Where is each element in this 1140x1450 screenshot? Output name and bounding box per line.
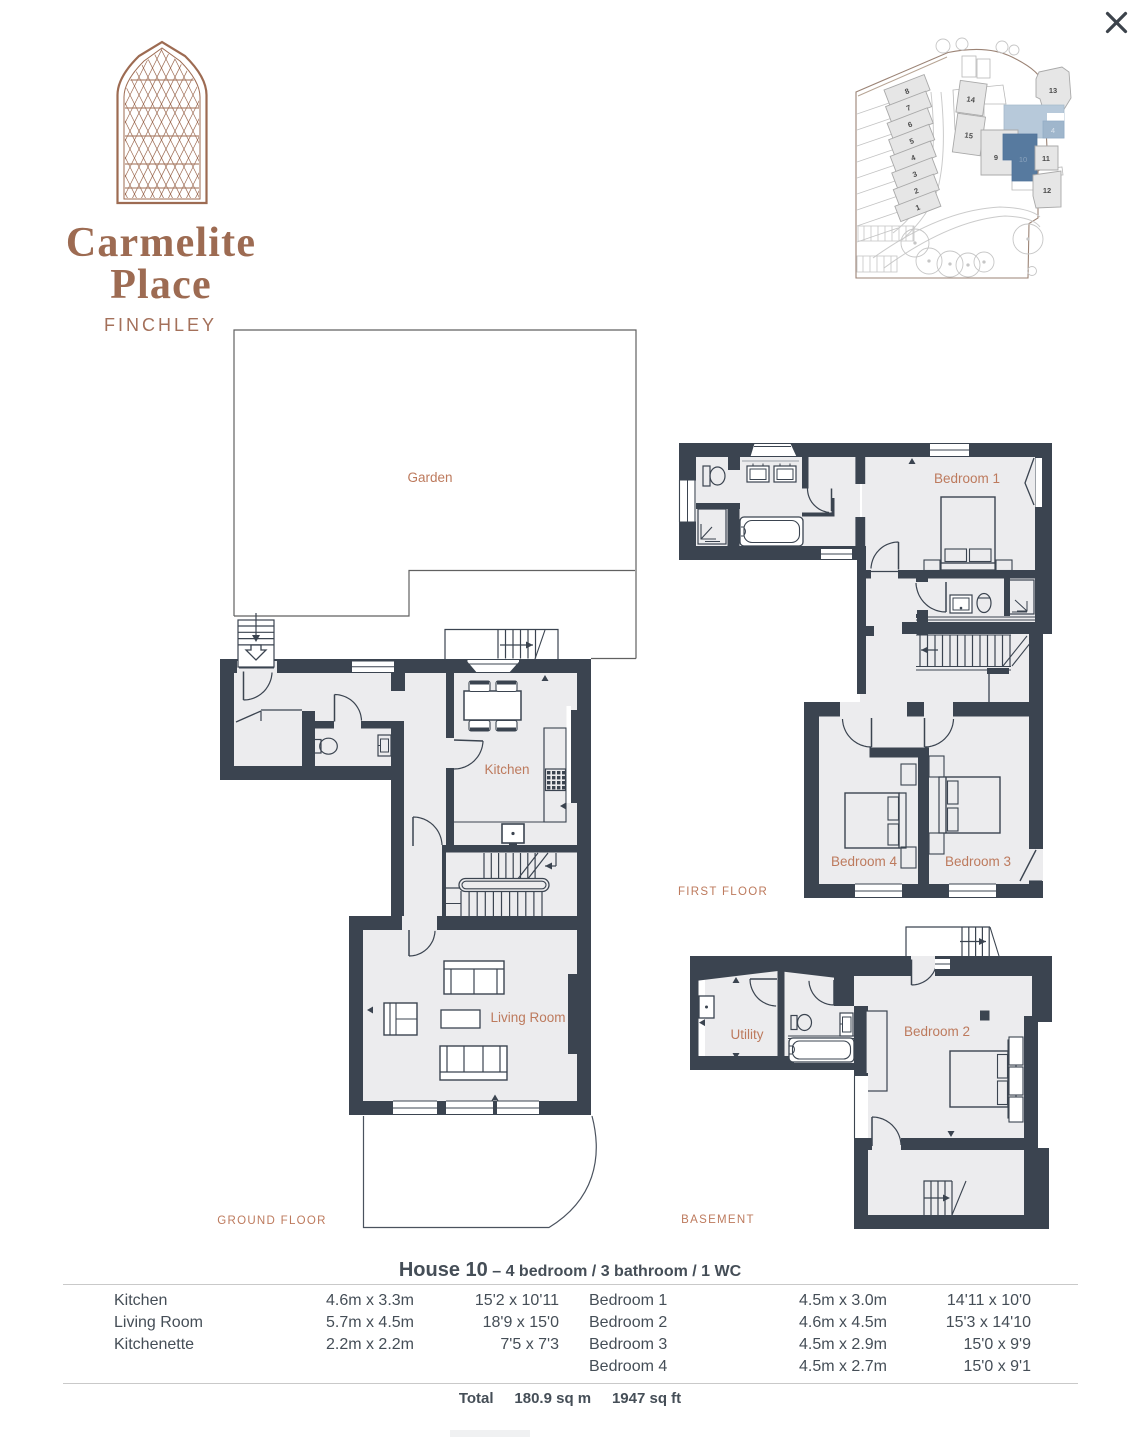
svg-text:Living Room: Living Room <box>490 1010 565 1025</box>
svg-text:12: 12 <box>1043 186 1051 195</box>
svg-text:Bedroom 3: Bedroom 3 <box>945 854 1011 869</box>
svg-text:FINCHLEY: FINCHLEY <box>104 315 217 335</box>
svg-text:Carmelite: Carmelite <box>66 220 256 266</box>
svg-text:Utility: Utility <box>731 1027 764 1042</box>
svg-text:13: 13 <box>1049 86 1057 95</box>
svg-text:GROUND FLOOR: GROUND FLOOR <box>217 1215 327 1227</box>
svg-text:Kitchen: Kitchen <box>484 762 529 777</box>
svg-text:Bedroom 1: Bedroom 1 <box>934 471 1000 486</box>
svg-text:10: 10 <box>1019 155 1027 164</box>
svg-text:Garden: Garden <box>407 470 452 485</box>
svg-text:4: 4 <box>1051 126 1055 135</box>
svg-text:11: 11 <box>1042 154 1050 163</box>
svg-text:BASEMENT: BASEMENT <box>681 1214 755 1226</box>
svg-text:Bedroom 4: Bedroom 4 <box>831 854 898 869</box>
svg-text:Place: Place <box>110 262 212 308</box>
svg-text:9: 9 <box>994 153 998 162</box>
svg-text:FIRST FLOOR: FIRST FLOOR <box>678 886 768 898</box>
svg-text:15: 15 <box>964 130 974 140</box>
svg-text:Bedroom 2: Bedroom 2 <box>904 1024 970 1039</box>
